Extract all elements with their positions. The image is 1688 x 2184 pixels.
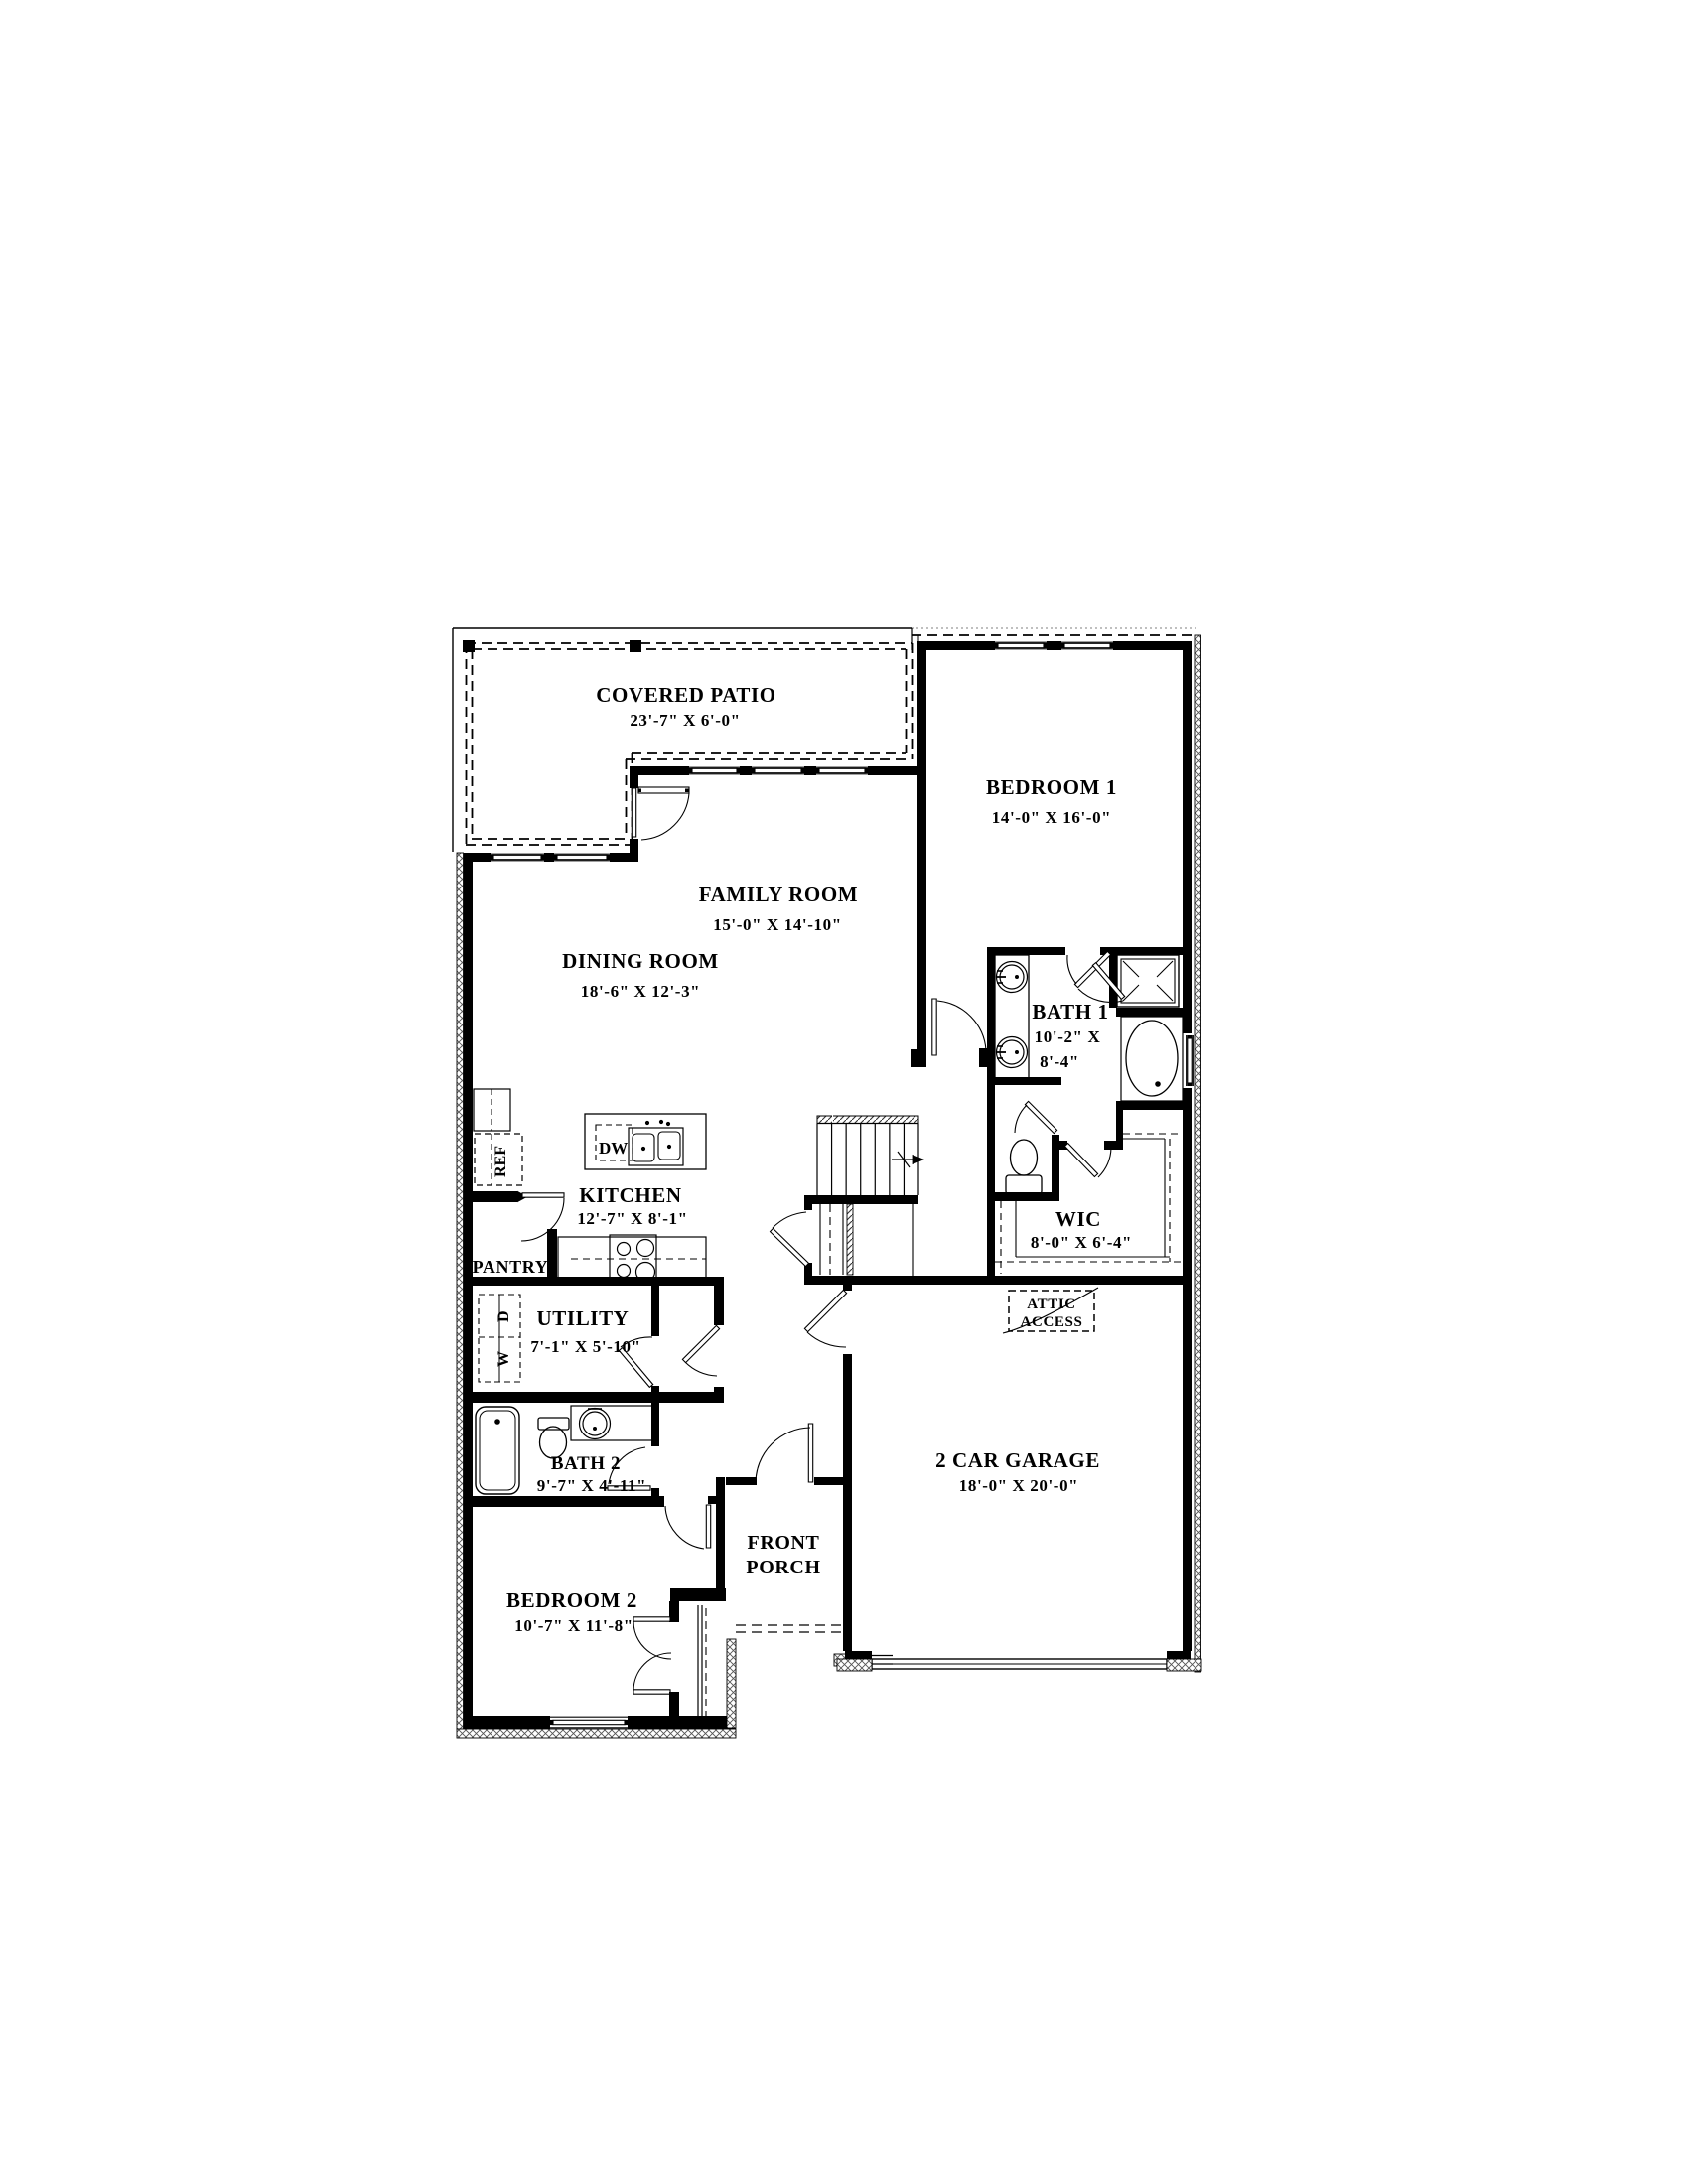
svg-text:8'-0" X 6'-4": 8'-0" X 6'-4" — [1031, 1233, 1132, 1252]
svg-text:BATH 1: BATH 1 — [1032, 1000, 1108, 1024]
svg-text:BATH 2: BATH 2 — [551, 1453, 621, 1474]
svg-text:9'-7" X 4'-11": 9'-7" X 4'-11" — [537, 1476, 646, 1495]
svg-text:18'-0" X 20'-0": 18'-0" X 20'-0" — [959, 1476, 1078, 1495]
svg-text:10'-2" X: 10'-2" X — [1035, 1027, 1101, 1046]
svg-text:BEDROOM 2: BEDROOM 2 — [506, 1588, 637, 1612]
svg-text:UTILITY: UTILITY — [537, 1306, 630, 1330]
svg-text:W: W — [495, 1351, 512, 1367]
svg-text:2 CAR GARAGE: 2 CAR GARAGE — [935, 1448, 1100, 1472]
svg-text:D: D — [495, 1310, 512, 1322]
svg-text:DINING ROOM: DINING ROOM — [562, 949, 719, 973]
svg-text:15'-0" X 14'-10": 15'-0" X 14'-10" — [713, 915, 842, 934]
svg-text:PORCH: PORCH — [746, 1557, 820, 1578]
svg-text:10'-7" X 11'-8": 10'-7" X 11'-8" — [514, 1616, 633, 1635]
svg-text:7'-1" X 5'-10": 7'-1" X 5'-10" — [530, 1337, 640, 1356]
svg-text:KITCHEN: KITCHEN — [579, 1183, 681, 1207]
svg-text:PANTRY: PANTRY — [473, 1257, 549, 1277]
svg-text:REF: REF — [492, 1146, 509, 1177]
svg-text:14'-0" X 16'-0": 14'-0" X 16'-0" — [992, 808, 1111, 827]
svg-text:ATTIC: ATTIC — [1027, 1297, 1075, 1312]
svg-text:DW: DW — [599, 1139, 628, 1158]
svg-text:WIC: WIC — [1055, 1207, 1101, 1231]
svg-text:FRONT: FRONT — [748, 1532, 820, 1554]
svg-text:ACCESS: ACCESS — [1021, 1314, 1083, 1330]
svg-text:BEDROOM 1: BEDROOM 1 — [986, 775, 1117, 799]
svg-text:8'-4": 8'-4" — [1040, 1052, 1079, 1071]
svg-text:18'-6" X 12'-3": 18'-6" X 12'-3" — [581, 982, 700, 1001]
svg-text:23'-7" X 6'-0": 23'-7" X 6'-0" — [630, 711, 740, 730]
svg-text:COVERED PATIO: COVERED PATIO — [596, 683, 775, 707]
svg-text:12'-7" X 8'-1": 12'-7" X 8'-1" — [577, 1209, 687, 1228]
svg-text:FAMILY ROOM: FAMILY ROOM — [699, 883, 858, 906]
